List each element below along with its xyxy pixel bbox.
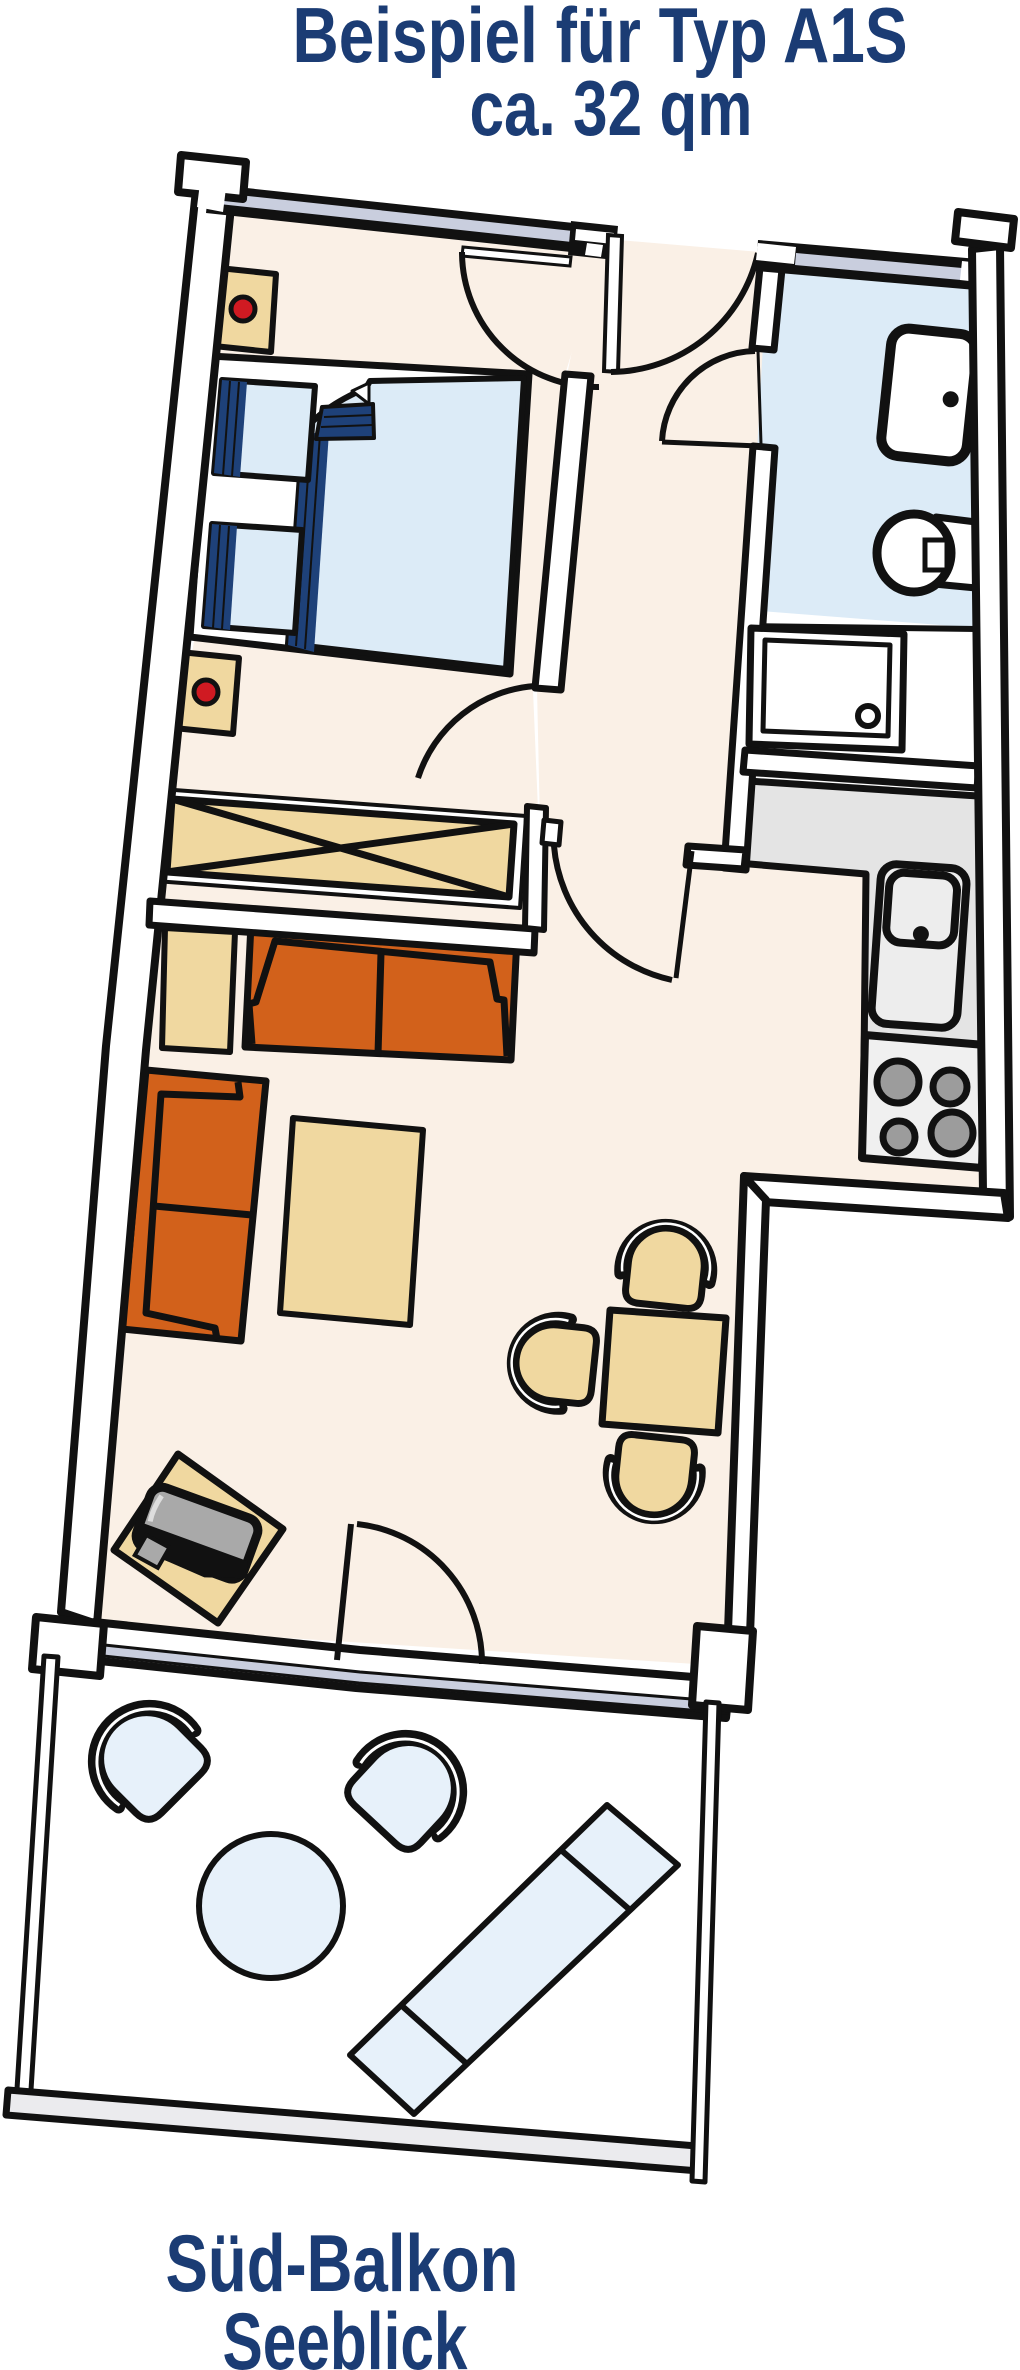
svg-text:ca. 32 qm: ca. 32 qm [470, 64, 753, 152]
svg-text:Seeblick: Seeblick [223, 2297, 469, 2370]
svg-text:Süd-Balkon: Süd-Balkon [166, 2219, 519, 2309]
